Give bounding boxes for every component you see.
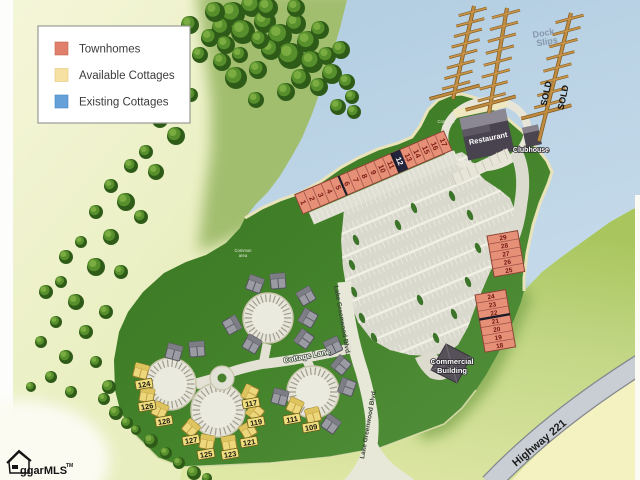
svg-text:area: area bbox=[442, 124, 451, 129]
svg-text:TM: TM bbox=[66, 463, 73, 469]
svg-text:Available Cottages: Available Cottages bbox=[79, 70, 175, 82]
svg-text:Townhomes: Townhomes bbox=[79, 44, 141, 56]
svg-text:Clubhouse: Clubhouse bbox=[513, 147, 549, 154]
svg-text:ggarMLS: ggarMLS bbox=[20, 465, 67, 477]
svg-text:area: area bbox=[239, 253, 248, 258]
svg-text:Commercial: Commercial bbox=[431, 357, 474, 366]
svg-text:Existing Cottages: Existing Cottages bbox=[79, 97, 169, 109]
svg-text:Building: Building bbox=[437, 366, 467, 375]
